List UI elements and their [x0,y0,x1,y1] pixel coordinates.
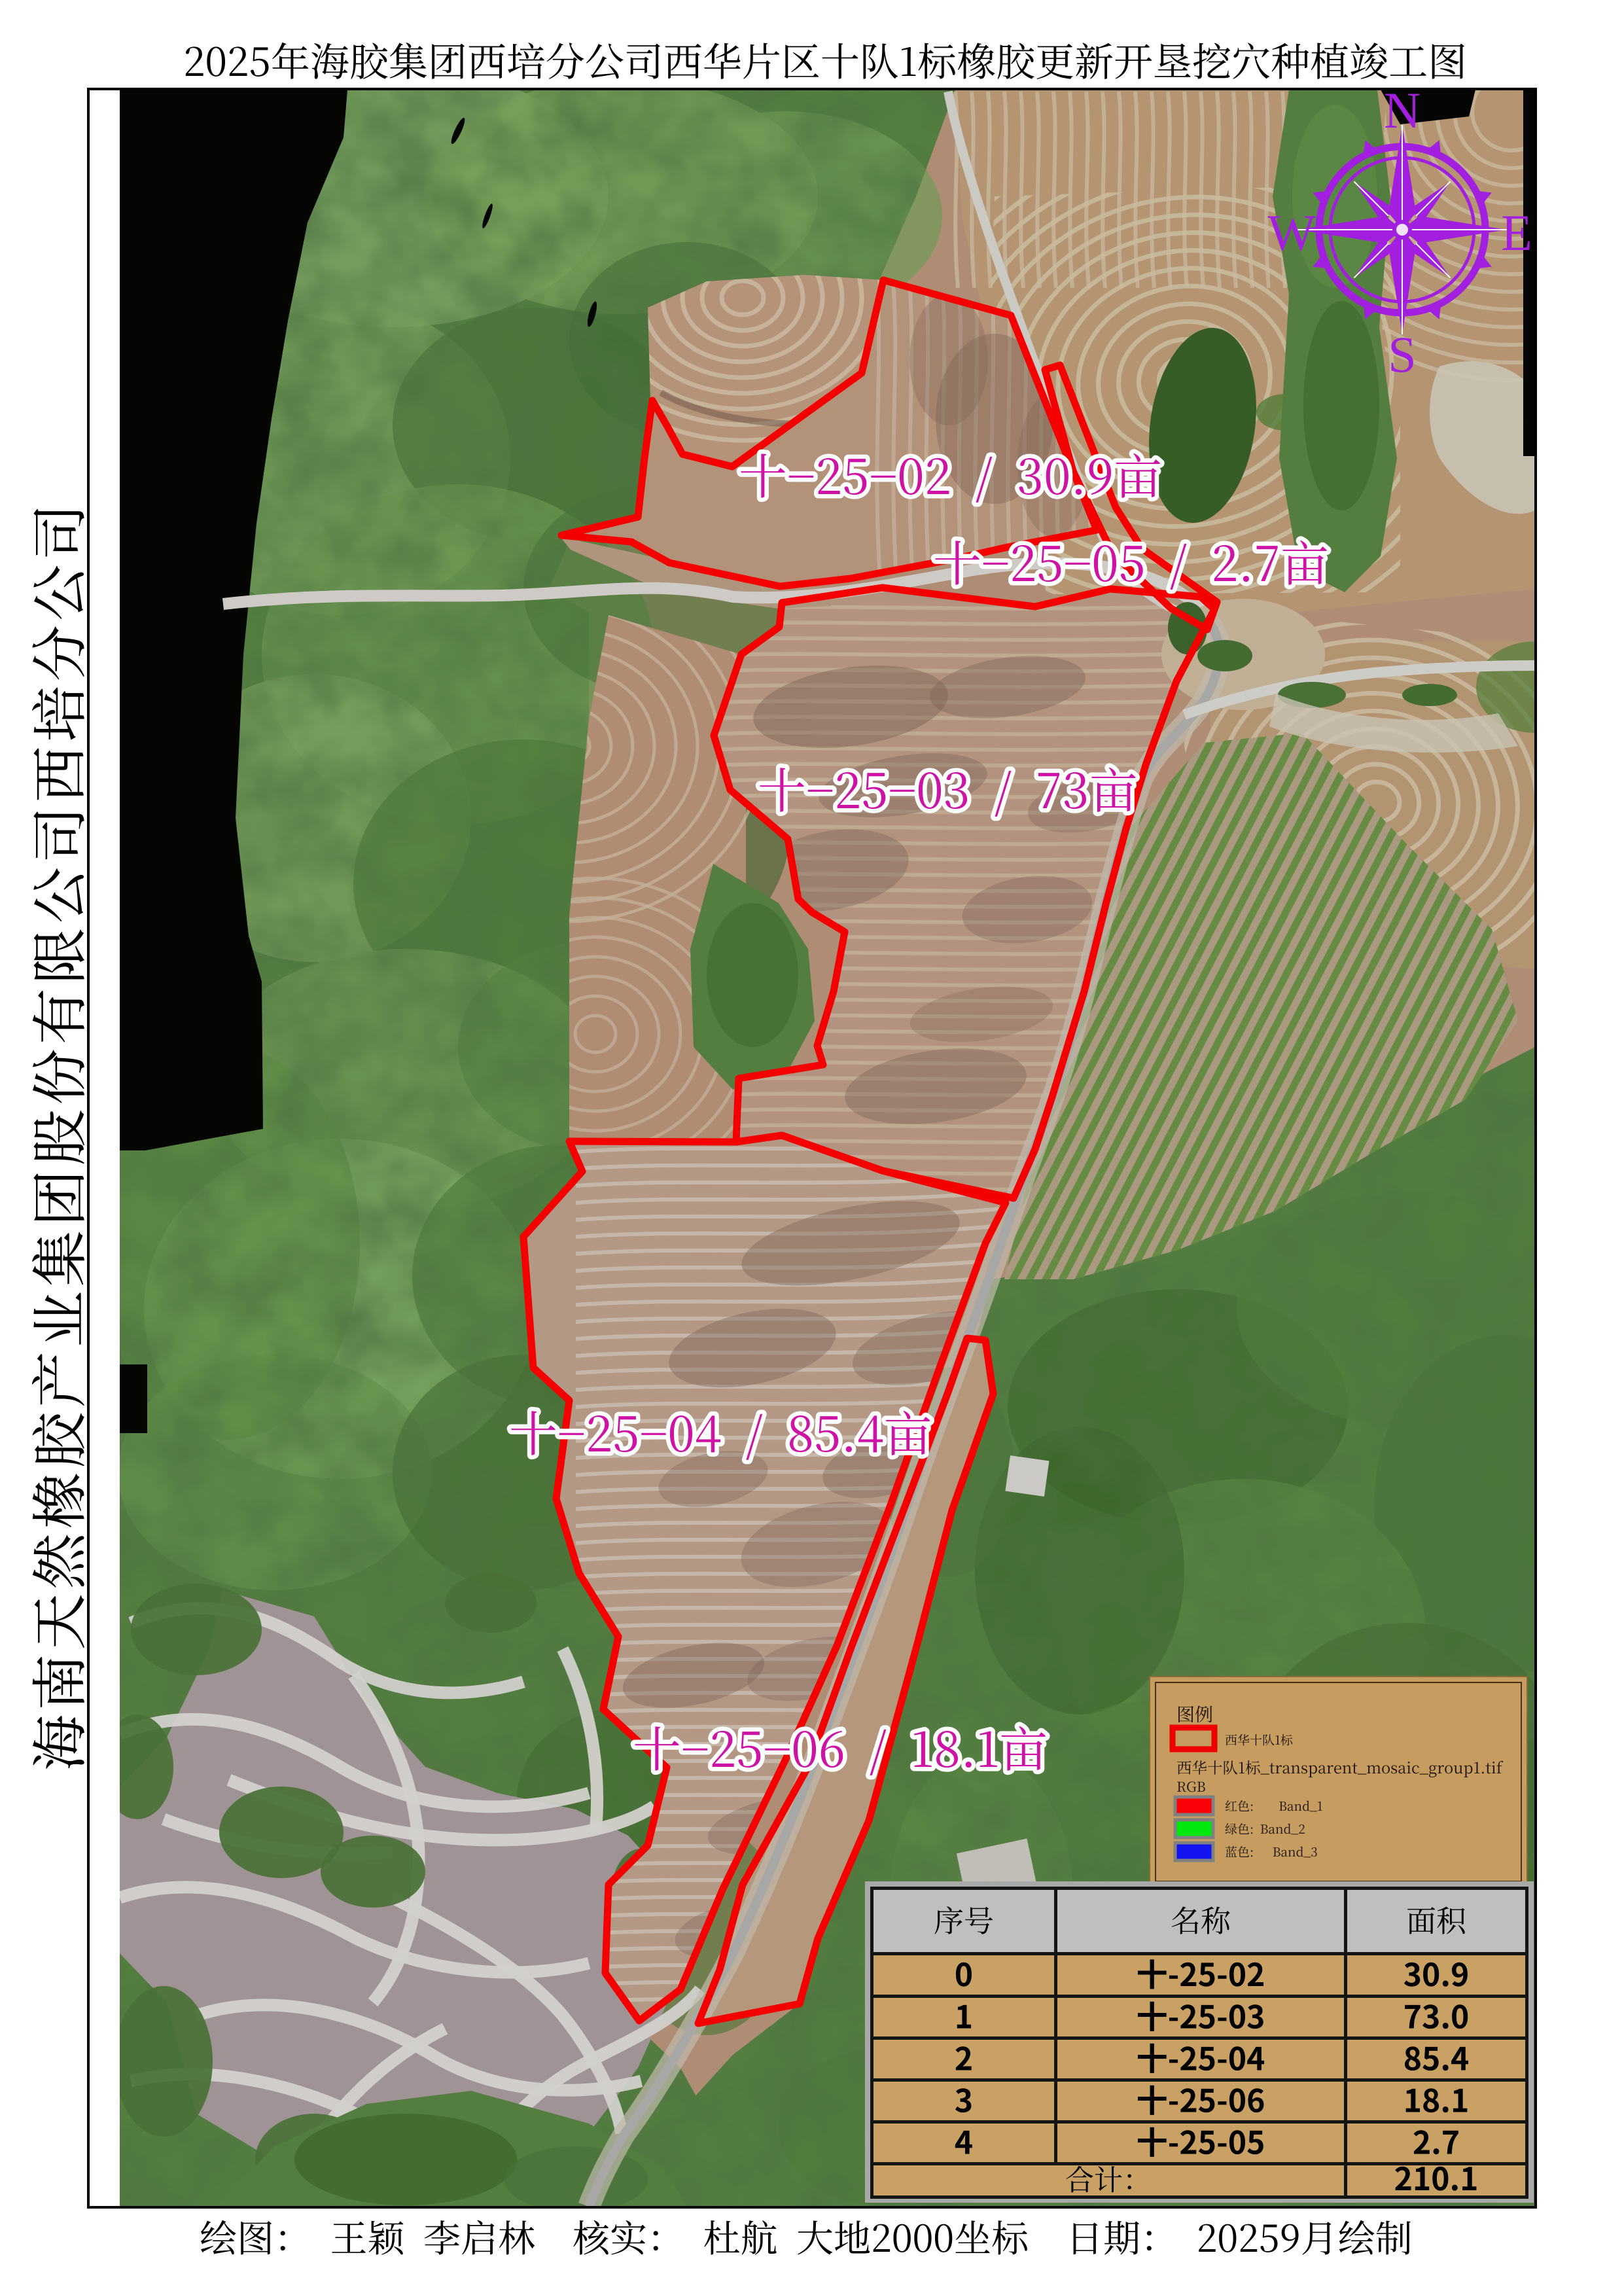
svg-text:S: S [1388,326,1416,383]
svg-text:W: W [1267,204,1316,261]
svg-text:N: N [1384,82,1421,139]
svg-text:E: E [1501,204,1532,261]
